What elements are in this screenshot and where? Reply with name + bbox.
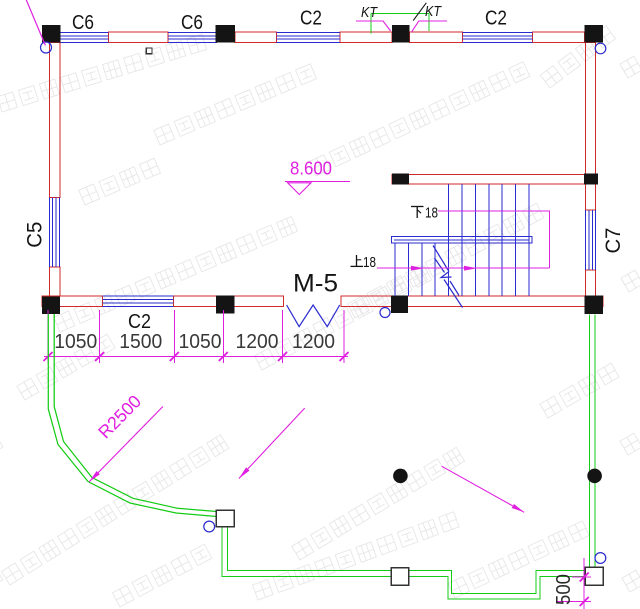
svg-text:18: 18 bbox=[363, 255, 376, 271]
svg-text:C2: C2 bbox=[300, 8, 322, 30]
svg-text:1200: 1200 bbox=[236, 330, 279, 353]
svg-text:500: 500 bbox=[553, 574, 575, 605]
svg-text:C5: C5 bbox=[24, 222, 47, 248]
svg-text:1050: 1050 bbox=[179, 330, 222, 353]
svg-text:C6: C6 bbox=[181, 12, 203, 34]
svg-text:KT: KT bbox=[425, 4, 442, 20]
svg-text:C7: C7 bbox=[602, 228, 625, 254]
svg-text:M-5: M-5 bbox=[293, 270, 338, 298]
svg-text:1050: 1050 bbox=[54, 330, 97, 353]
svg-text:C2: C2 bbox=[485, 8, 507, 30]
svg-text:C6: C6 bbox=[72, 12, 94, 34]
svg-text:1500: 1500 bbox=[119, 330, 162, 353]
svg-text:8.600: 8.600 bbox=[290, 159, 332, 179]
svg-text:R2500: R2500 bbox=[94, 391, 145, 442]
svg-text:KT: KT bbox=[361, 5, 378, 21]
svg-text:1200: 1200 bbox=[292, 330, 335, 353]
svg-text:18: 18 bbox=[425, 206, 438, 222]
